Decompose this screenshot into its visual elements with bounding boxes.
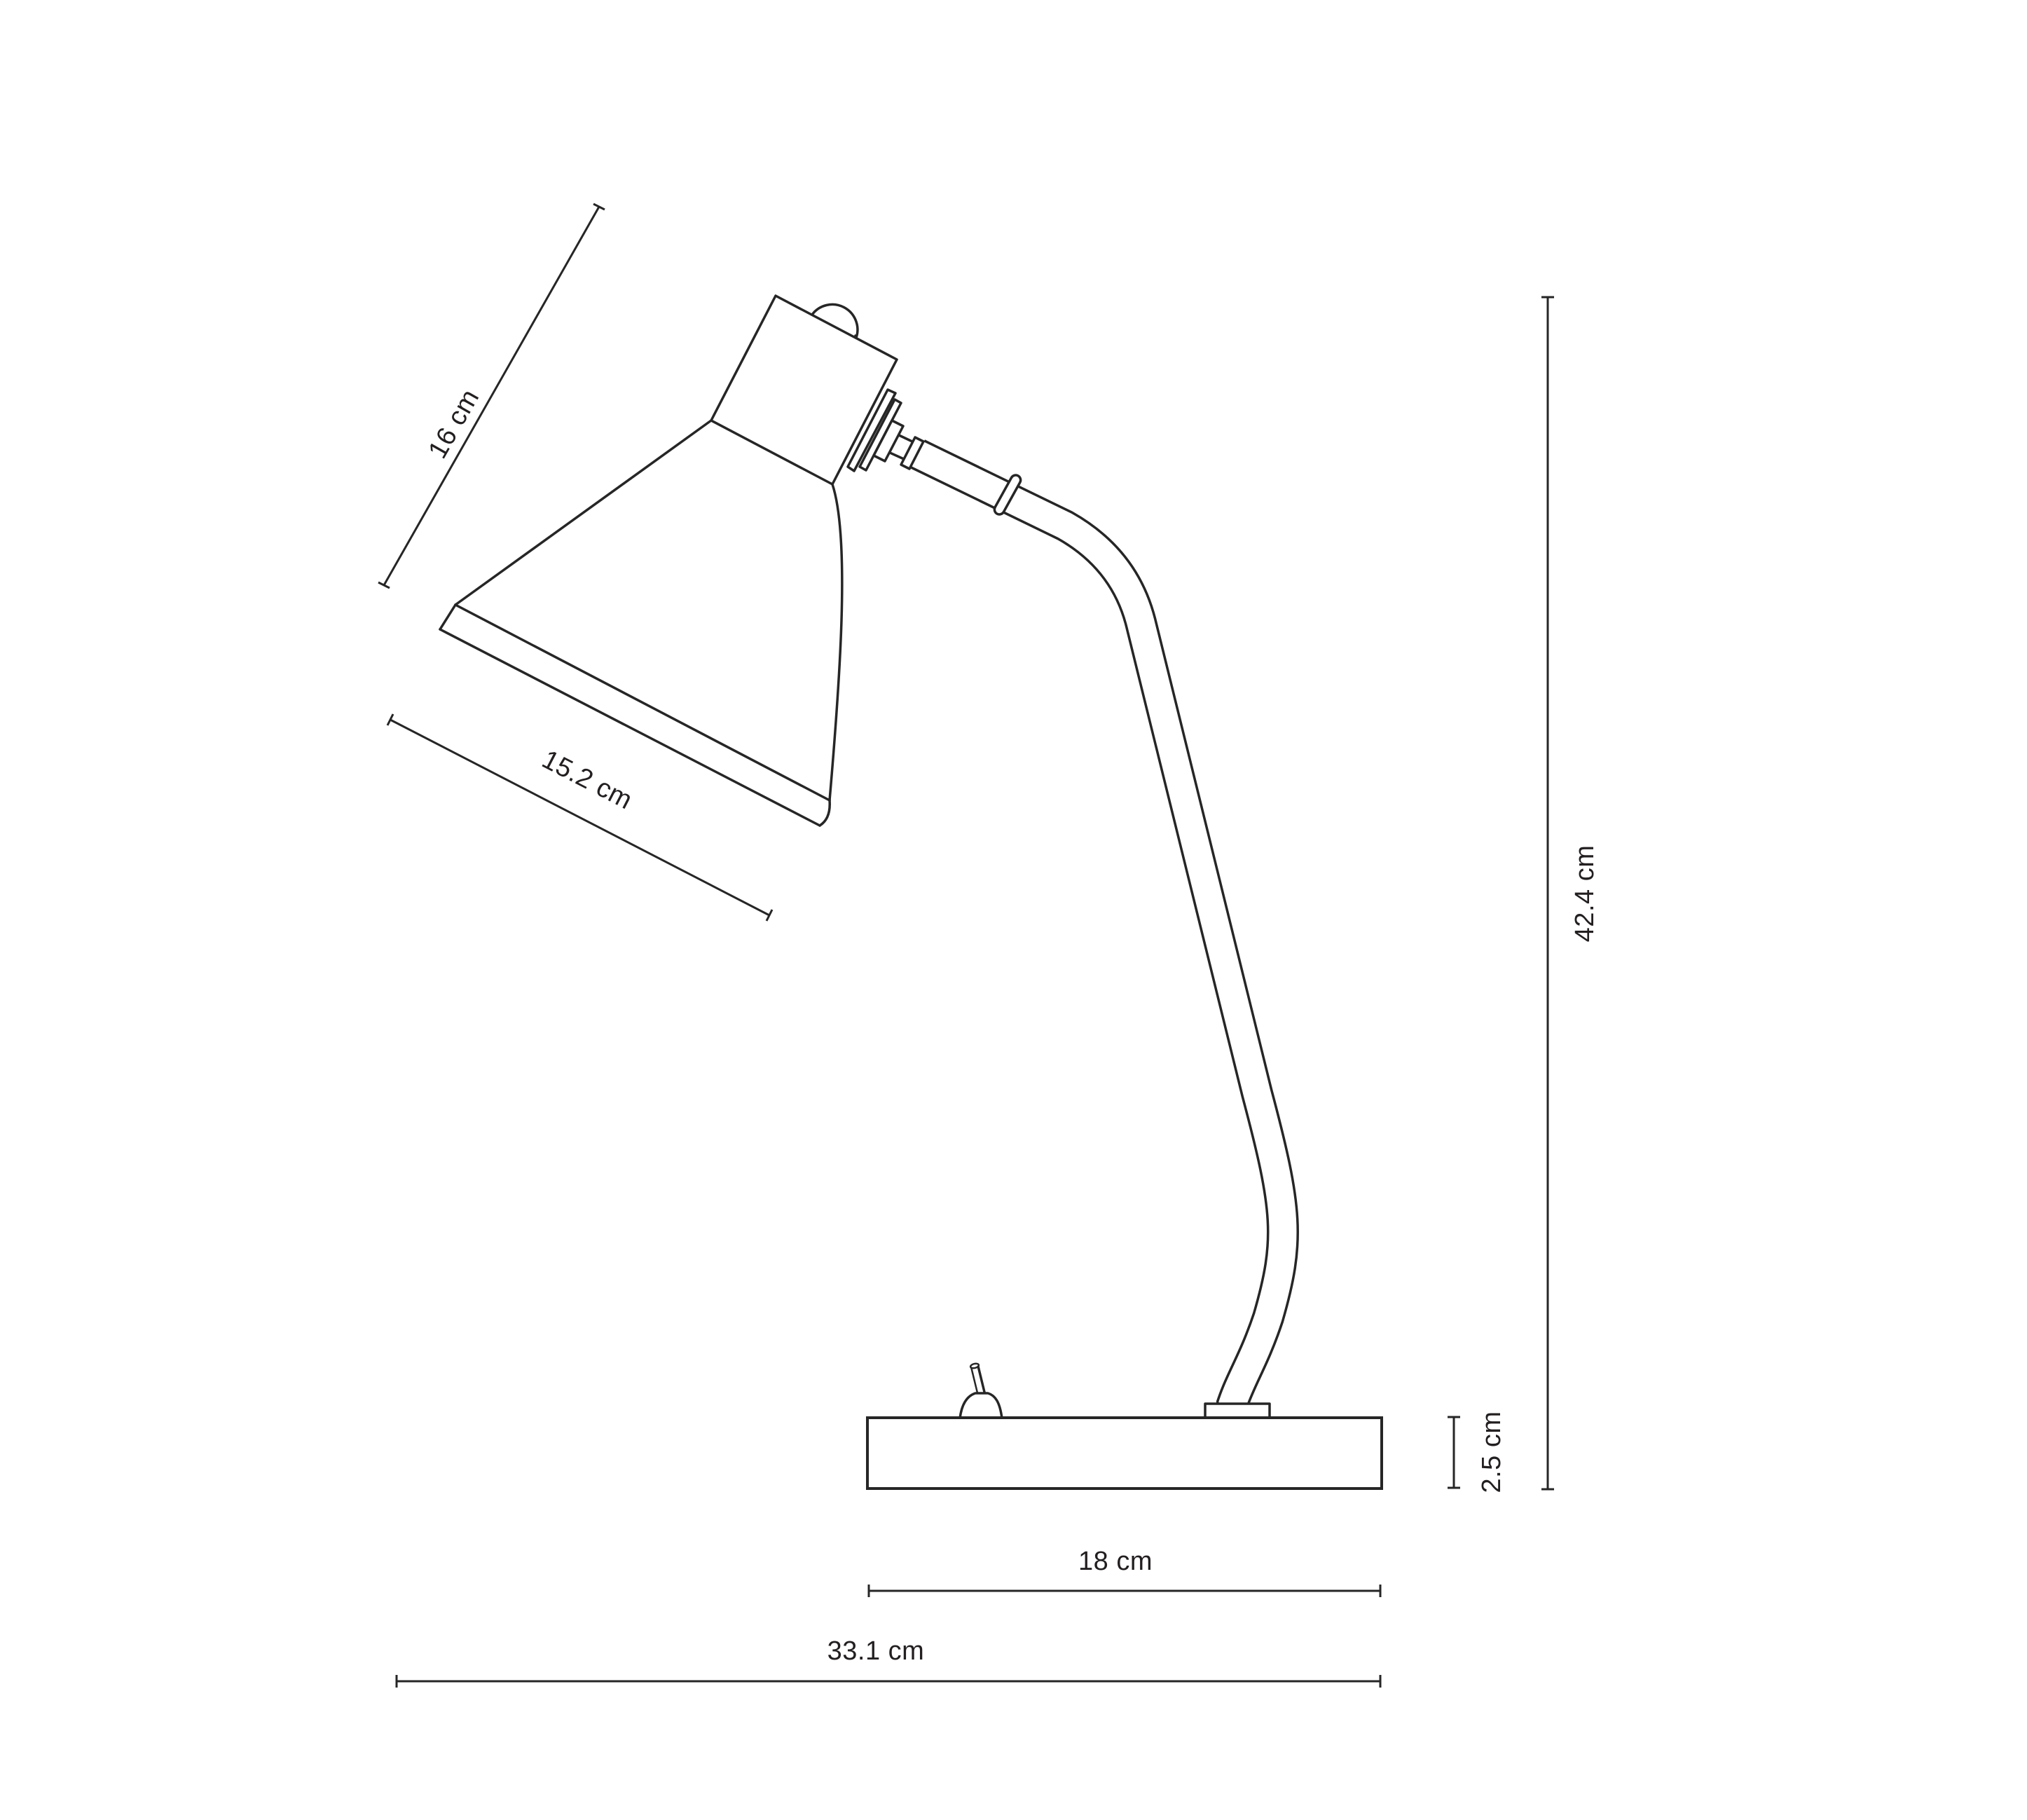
lamp-arm-inner: [918, 454, 1283, 1410]
power-switch: [960, 1363, 1002, 1418]
hinge-neck-bottom: [890, 453, 904, 459]
shade-rim-left-cap: [440, 605, 455, 629]
lamp-drawing: [440, 296, 1382, 1489]
switch-bell: [960, 1393, 1002, 1418]
dimension-shade-slant-height: 16 cm: [378, 204, 605, 588]
lamp-shade: [440, 420, 842, 826]
dimension-line-16cm: [384, 207, 599, 585]
dimension-base-thickness: 2.5 cm: [1448, 1411, 1506, 1493]
shade-right-wall: [830, 484, 842, 800]
lamp-technical-drawing: 16 cm 15.2 cm 42.4 cm 2.5 cm 18 cm 33.1 …: [0, 0, 2027, 1820]
dimension-label-15-2cm: 15.2 cm: [537, 745, 637, 816]
lamp-arm: [918, 454, 1283, 1410]
dimension-shade-width: 15.2 cm: [387, 714, 772, 921]
shade-left-wall: [455, 420, 711, 605]
shade-rim-top: [455, 605, 830, 800]
shade-rim-right-cap: [820, 800, 830, 826]
dimension-label-42-4cm: 42.4 cm: [1570, 845, 1600, 943]
dimension-label-2-5cm: 2.5 cm: [1477, 1411, 1506, 1493]
dimension-base-length: 18 cm: [869, 1547, 1380, 1597]
dimension-overall-depth: 33.1 cm: [397, 1636, 1380, 1688]
dimension-label-33-1cm: 33.1 cm: [827, 1636, 925, 1666]
dimension-overall-height: 42.4 cm: [1541, 297, 1600, 1489]
arm-mount-block: [1205, 1404, 1270, 1418]
hinge-neck-top: [899, 435, 912, 442]
dimension-line-15-2cm: [390, 720, 769, 915]
lamp-base: [867, 1418, 1382, 1489]
dimension-label-18cm: 18 cm: [1078, 1547, 1153, 1576]
drawing-canvas: 16 cm 15.2 cm 42.4 cm 2.5 cm 18 cm 33.1 …: [0, 0, 2027, 1820]
